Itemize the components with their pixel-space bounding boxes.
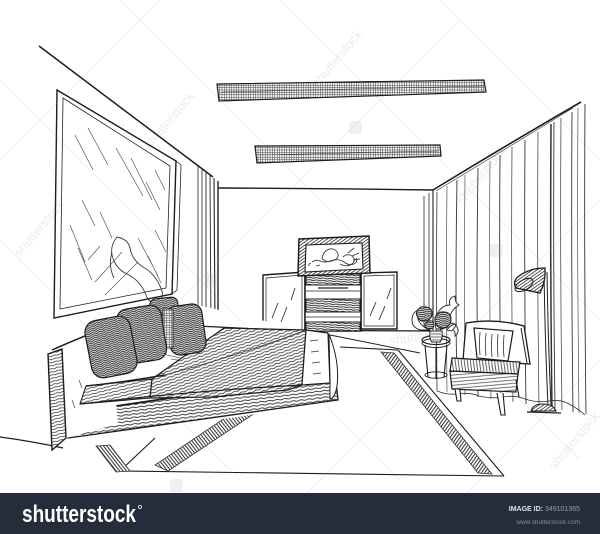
svg-text:shutterstock: shutterstock (22, 501, 137, 528)
svg-text:www.shutterstock.com: www.shutterstock.com (515, 519, 580, 526)
svg-text:IMAGE ID: 349101365: IMAGE ID: 349101365 (509, 506, 580, 513)
